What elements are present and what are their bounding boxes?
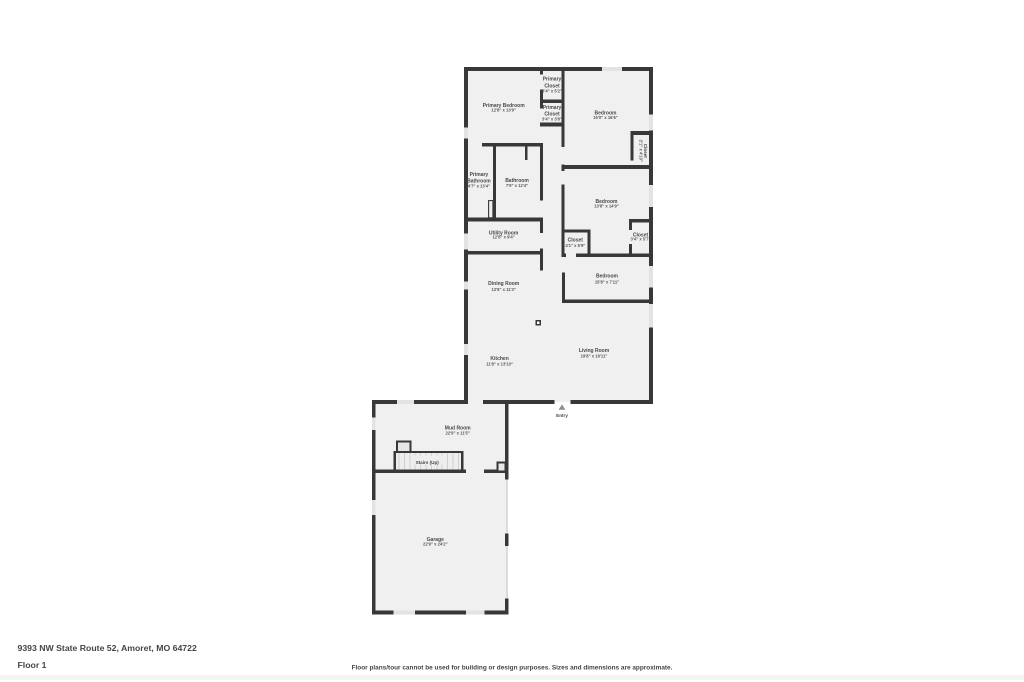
svg-text:12'8" x 13'9": 12'8" x 13'9" [491,107,516,112]
svg-text:4'7" x 13'4": 4'7" x 13'4" [468,184,490,189]
svg-text:15'8" x 7'11": 15'8" x 7'11" [595,279,619,284]
svg-text:3'4" x 5'7": 3'4" x 5'7" [631,237,651,242]
svg-text:3'4" x 5'2": 3'4" x 5'2" [542,88,562,93]
svg-text:Stairs (Up): Stairs (Up) [416,460,440,465]
svg-text:9393 NW State Route 52, Amoret: 9393 NW State Route 52, Amoret, MO 64722 [18,643,197,653]
svg-text:Entry: Entry [556,413,568,418]
svg-text:Floor 1: Floor 1 [18,660,47,670]
svg-text:13'8" x 14'9": 13'8" x 14'9" [594,204,619,209]
svg-text:Primary: Primary [543,76,562,82]
svg-text:4'1" x 5'9": 4'1" x 5'9" [565,243,585,248]
svg-text:3'4" x 3'8": 3'4" x 3'8" [542,116,562,121]
svg-text:7'9" x 12'4": 7'9" x 12'4" [506,183,528,188]
svg-text:12'8" x 9'4": 12'8" x 9'4" [492,235,514,240]
svg-text:Primary: Primary [470,172,489,178]
svg-text:2'1" x 4'10": 2'1" x 4'10" [639,140,644,162]
svg-text:22'9" x 24'2": 22'9" x 24'2" [423,541,448,546]
svg-text:11'8" x 13'10": 11'8" x 13'10" [486,362,513,367]
svg-text:19'8" x 16'11": 19'8" x 16'11" [581,354,608,359]
svg-text:15'0" x 16'6": 15'0" x 16'6" [593,115,618,120]
svg-text:Primary: Primary [543,105,562,111]
svg-text:22'9" x 11'5": 22'9" x 11'5" [446,430,470,435]
svg-text:12'8" x 11'3": 12'8" x 11'3" [492,287,516,292]
svg-text:Floor plans/tour cannot be use: Floor plans/tour cannot be used for buil… [352,665,673,672]
